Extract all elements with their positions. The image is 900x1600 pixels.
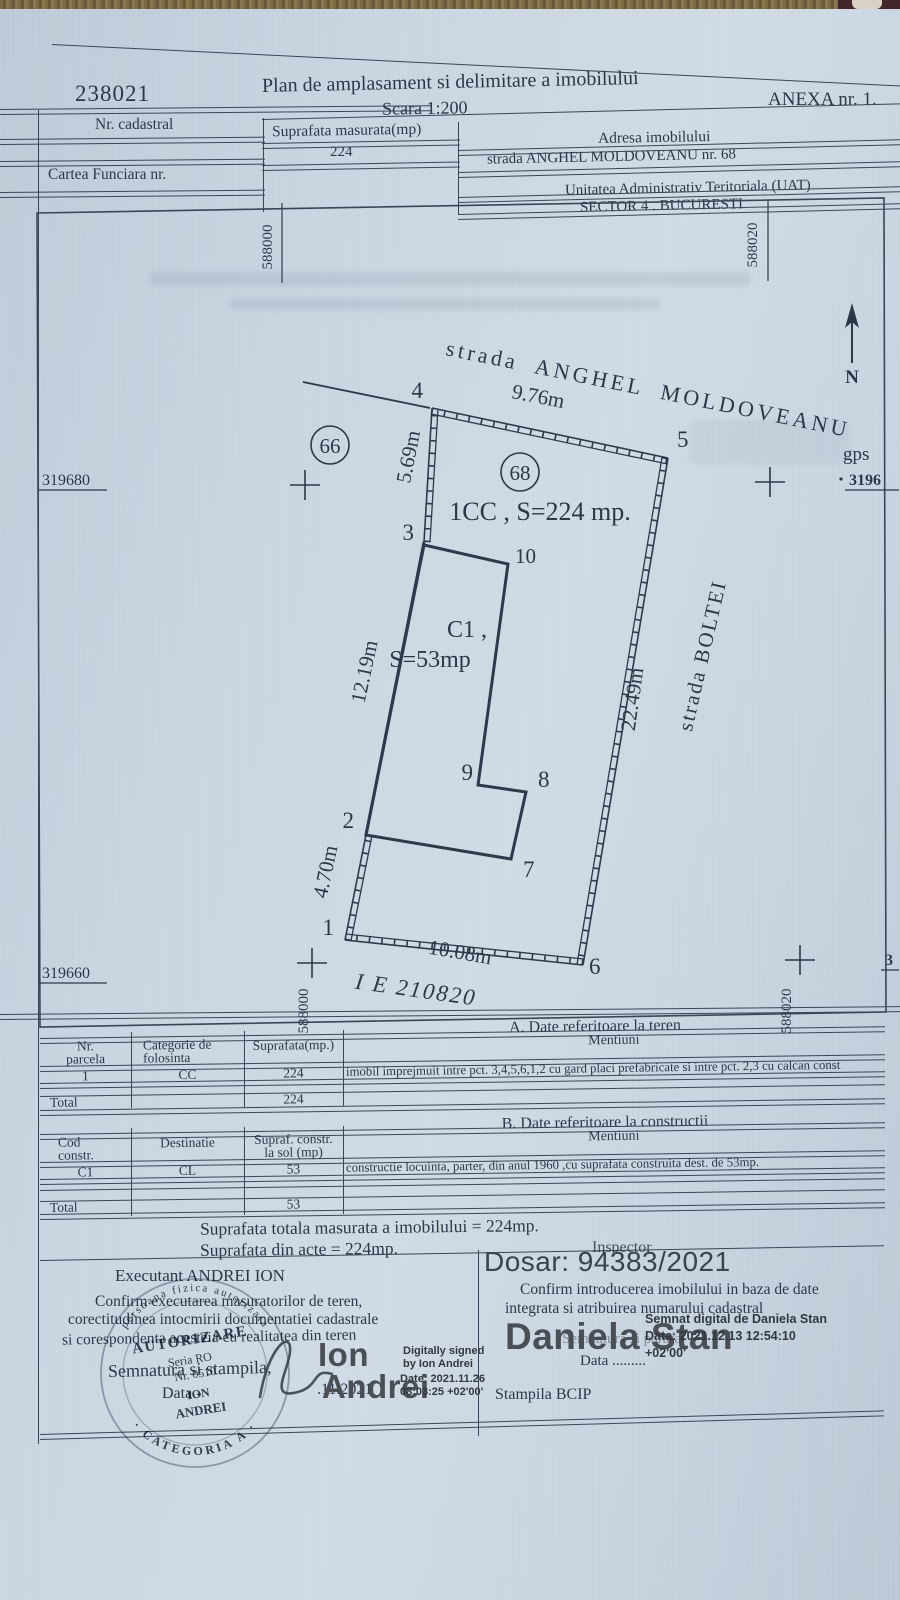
table-b-cell-destinatie: CL [131, 1162, 244, 1180]
site-plan: 588000 588020 strada ANGHEL MOLDOVEANU N [25, 185, 900, 1065]
grid-label-319660: 319660 [42, 965, 90, 982]
dim-left-upper: 5.69m [391, 428, 425, 485]
table-a-cell-nr: 1 [40, 1068, 131, 1085]
nr-cadastral-label: Nr. cadastral [95, 117, 173, 133]
dim-right: 22.49m [616, 666, 649, 732]
grid-cross [755, 467, 785, 497]
digital-info-line: by Ion Andrei [403, 1358, 473, 1370]
gps-value: 3196 [849, 472, 881, 489]
neighbor-left-label: 66 [320, 434, 341, 458]
table-a-header-nr: Nr. parcela [40, 1040, 131, 1066]
grid-label-right-clipped: 3 [885, 952, 893, 969]
inspector-confirm-1: Confirm introducerea imobilului in baza … [520, 1282, 819, 1298]
table-b-total-label: Total [50, 1199, 130, 1216]
table-a-header-categorie: Categorie de folosinta [131, 1038, 256, 1065]
table-a-header-suprafata: Suprafata(mp.) [244, 1037, 343, 1054]
dim-top: 9.76m [510, 379, 567, 413]
building-outline [366, 545, 526, 859]
header-line [262, 162, 460, 171]
building-label-1: C1 , [447, 617, 487, 643]
data-label-right: Data ......... [580, 1354, 646, 1370]
dim-bottom: 10.08m [427, 935, 494, 970]
grid-label-588020-top: 588020 [745, 223, 761, 268]
table-b-header-destinatie: Destinatie [131, 1134, 244, 1152]
signature-divider [478, 1250, 479, 1436]
table-a-total-label: Total [50, 1094, 130, 1111]
stamp-line-ion: ION [186, 1385, 211, 1402]
photo-corner-light [852, 0, 882, 9]
dim-left-mid: 12.19m [346, 638, 383, 705]
point-10: 10 [515, 544, 536, 568]
table-b-cell-supraf: 53 [244, 1161, 343, 1178]
cartea-funciara-label: Cartea Funciara nr. [48, 167, 166, 183]
point-8: 8 [538, 767, 550, 792]
north-label: N [845, 367, 859, 388]
point-4: 4 [412, 378, 424, 403]
digital-info-line: 08:03:25 +02'00' [400, 1386, 483, 1398]
digital-info-line: Data: 2021.12.13 12:54:10 [645, 1329, 796, 1343]
digital-info-line: Semnat digital de Daniela Stan [645, 1312, 827, 1326]
table-b-header-supraf: Supraf. constr. la sol (mp) [244, 1133, 343, 1159]
building-label-2: S=53mp [389, 647, 471, 673]
fence-hatching [345, 408, 668, 965]
plan-border [37, 198, 886, 1027]
point-9: 9 [462, 760, 474, 785]
grid-label-588000-top: 588000 [260, 225, 276, 270]
cadastral-number: 238021 [75, 82, 150, 106]
photo: 238021 Plan de amplasament si delimitare… [0, 0, 900, 1600]
grid-cross [290, 470, 320, 500]
stamp-ring-bottom-text: · CATEGORIA A · [130, 1419, 260, 1459]
point-6: 6 [589, 954, 601, 979]
header-line [262, 140, 460, 149]
street-name-right: strada BOLTEI [673, 578, 731, 734]
grid-cross [297, 948, 327, 978]
header-line [0, 137, 265, 145]
north-arrow: N [845, 303, 859, 388]
header-line [0, 105, 432, 115]
table-b-total-value: 53 [244, 1196, 343, 1213]
dosar-number: Dosar: 94383/2021 [484, 1246, 731, 1278]
neighbor-right-label: 68 [510, 461, 531, 485]
point-3: 3 [403, 520, 415, 545]
point-1: 1 [323, 915, 335, 940]
digital-info-line: +02'00' [645, 1346, 686, 1360]
suprafata-masurata-label: Suprafata masurata(mp) [272, 122, 422, 141]
dim-left-lower: 4.70m [308, 843, 343, 900]
gps-label: gps [843, 444, 869, 465]
page-title: Plan de amplasament si delimitare a imob… [262, 68, 639, 97]
grid-label-319680: 319680 [42, 472, 90, 489]
table-a-total-value: 224 [244, 1091, 343, 1108]
parcel-label: 1CC , S=224 mp. [449, 497, 631, 526]
street-name-top: strada ANGHEL MOLDOVEANU [444, 335, 852, 442]
point-5: 5 [677, 427, 689, 452]
point-7: 7 [523, 857, 535, 882]
svg-text:· CATEGORIA A ·: · CATEGORIA A · [130, 1419, 260, 1459]
digital-info-line: Date: 2021.11.26 [400, 1373, 485, 1385]
grid-cross [785, 945, 815, 975]
digital-info-line: Digitally signed [403, 1345, 484, 1357]
table-a-cell-categorie: CC [131, 1066, 244, 1084]
ie-label: I E 210820 [353, 969, 478, 1011]
table-a-cell-suprafata: 224 [244, 1065, 343, 1082]
point-2: 2 [343, 808, 355, 833]
table-b-cell-cod: C1 [40, 1164, 131, 1181]
stampila-bcip-label: Stampila BCIP [495, 1387, 591, 1404]
header-line [0, 159, 265, 167]
gps-dot [839, 477, 842, 480]
stamp-line-andrei: ANDREI [174, 1399, 227, 1422]
document-paper: 238021 Plan de amplasament si delimitare… [0, 9, 900, 1600]
total-measured-area: Suprafata totala masurata a imobilului =… [200, 1216, 539, 1238]
form: 238021 Plan de amplasament si delimitare… [0, 9, 900, 1600]
